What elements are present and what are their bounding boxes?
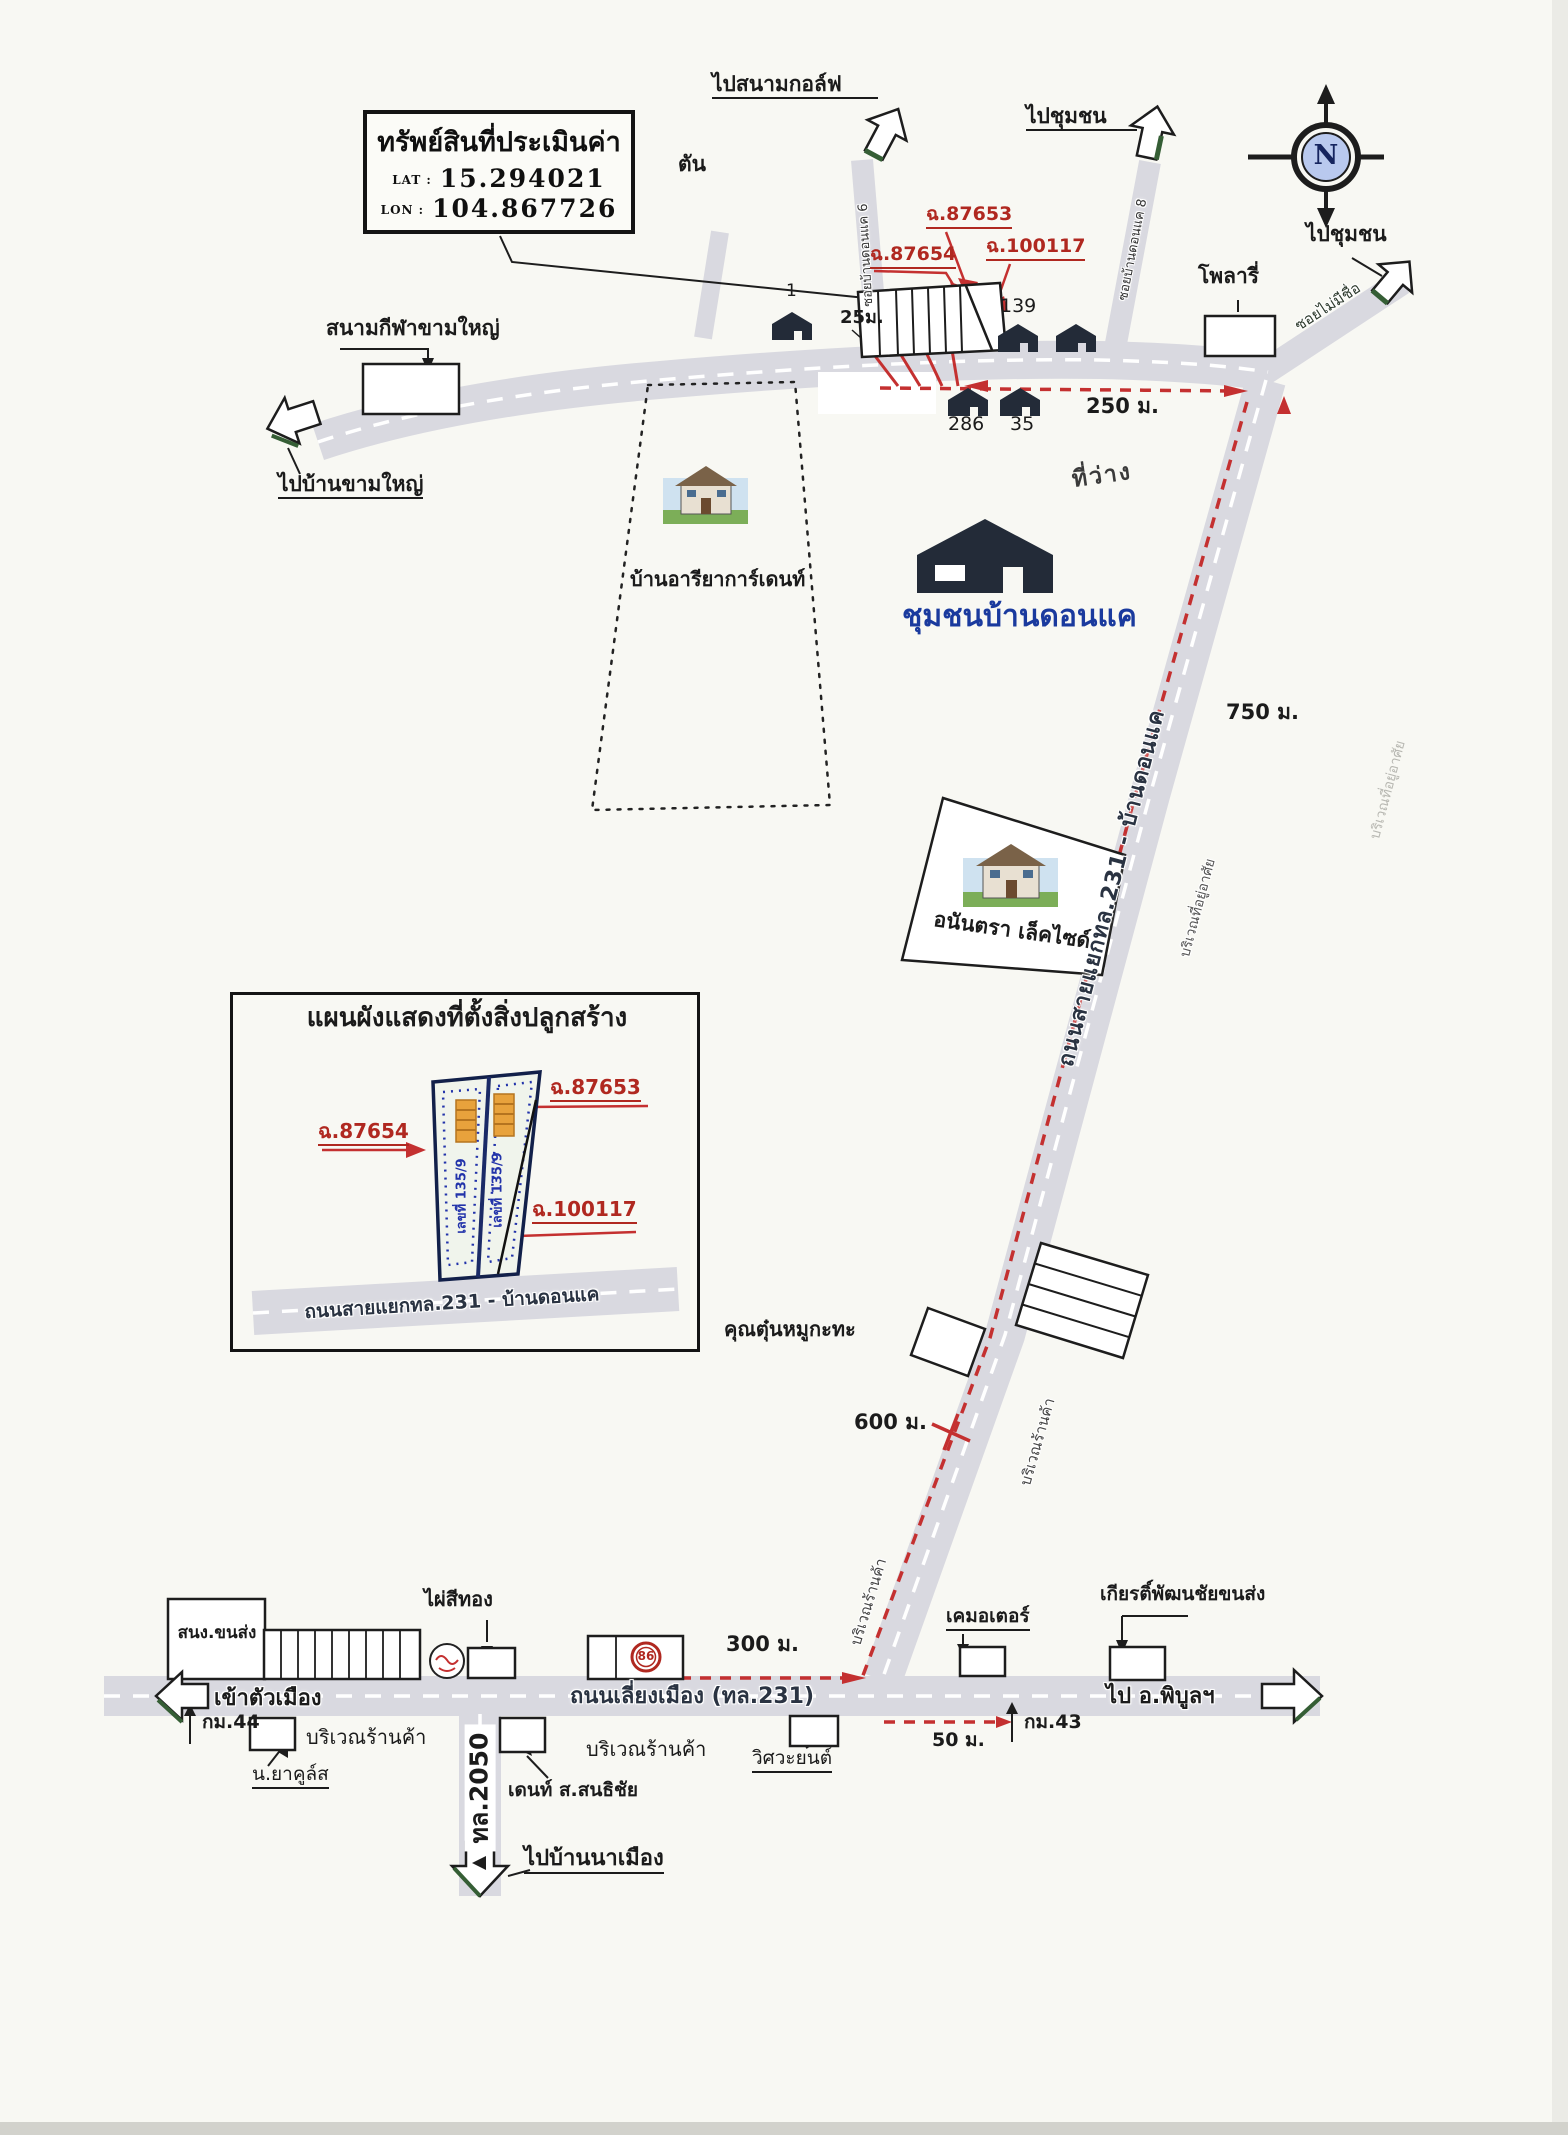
transport-office-label: สนง.ขนส่ง [172,1624,262,1644]
gas-86-label: 86 [638,1650,655,1664]
polaris-box [1205,316,1275,356]
inset-title: แผนผังแสดงที่ตั้งสิ่งปลูกสร้าง [252,1004,682,1034]
dead-end-stub-road [703,232,720,338]
deed-87654-label: ฉ.87654 [870,244,956,269]
inset-deed-87654: ฉ.87654 [318,1120,409,1146]
inset-deed-100117: ฉ.100117 [532,1198,637,1224]
kiat-transport-label: เกียรติ์พัฒนชัยขนส่ง [1100,1584,1265,1606]
deed-100117-label: ฉ.100117 [986,236,1085,261]
golf-arrow [854,99,917,166]
dist-50m-label: 50 ม. [932,1730,985,1752]
white-patch [818,372,936,414]
to-community-left-label: ไปชุมชน [1026,104,1137,131]
dent-label: เดนท์ ส.สนธิชัย [508,1780,638,1802]
mookata-label: คุณตุ๋นหมูกะทะ [724,1318,856,1341]
phai-si-thong-label: ไผ่สีทอง [424,1588,493,1611]
dent-box [500,1718,545,1752]
lat-value: 15.294021 [440,164,606,193]
ariya-dashed-parcel [592,382,830,810]
stadium-label: สนามกีฬาขามใหญ่ [326,316,500,340]
house-139-label: 139 [1000,296,1036,318]
yakult-label: น.ยาคูล์ส [252,1764,329,1789]
to-city-label: เข้าตัวเมือง [214,1686,322,1711]
km43-label: กม.43 [1024,1712,1082,1734]
title-box: ทรัพย์สินที่ประเมินค่า LAT :15.294021 LO… [363,110,635,234]
to-golf-label: ไปสนามกอล์ฟ [712,72,878,99]
polaris-label: โพลารี่ [1198,264,1259,288]
shophouse-row [264,1630,420,1679]
width-25m-label: 25ม. [840,308,884,329]
logo-circle [430,1644,464,1678]
title-box-title: ทรัพย์สินที่ประเมินค่า [367,120,631,163]
lat-label: LAT : [392,173,432,187]
scan-edge-right [1552,0,1568,2135]
kham-yai-arrow [260,390,325,454]
inset-house-no-right: เลขที่ 135/9 [492,1152,507,1227]
bottom-road-label: ถนนเลี่ยงเมือง (ทล.231) [570,1684,814,1709]
house-35-label: 35 [1010,414,1034,436]
to-community-right-label: ไปชุมชน [1306,222,1387,246]
k-motor-label: เคมอเตอร์ [946,1606,1030,1631]
dist-750m-label: 750 ม. [1226,700,1299,724]
dist-300m-label: 300 ม. [726,1632,799,1656]
wisawayon-label: วิศวะยนต์ [752,1748,832,1773]
lon-value: 104.867726 [432,194,617,223]
km44-label: กม.44 [202,1712,260,1734]
to-phibun-label: ไป อ.พิบูลฯ [1106,1684,1215,1709]
map-page: ทรัพย์สินที่ประเมินค่า LAT :15.294021 LO… [0,0,1568,2135]
community-label: ชุมชนบ้านดอนแค [902,600,1137,635]
house-286-label: 286 [948,414,984,436]
inset-deed-87653: ฉ.87653 [550,1076,641,1102]
compass-n: N [1314,140,1339,171]
kham-yai-label: ไปบ้านขามใหญ่ [278,472,423,499]
community-big-house [917,519,1053,593]
ariya-label: บ้านอารียาการ์เดนท์ [630,568,805,591]
ariya-house-image [663,466,748,524]
bottom-shops-a-label: บริเวณร้านค้า [306,1726,426,1749]
dead-end-label: ตัน [678,152,706,176]
lon-label: LON : [381,203,424,217]
tl2050-label: ทล.2050 [465,1725,496,1852]
dist-600m-label: 600 ม. [854,1410,927,1434]
kiat-transport-box [1110,1647,1165,1680]
inset-house-no-left: เลขที่ 135/9 [456,1158,471,1233]
house-1-label: 1 [786,282,797,302]
deed-87653-label: ฉ.87653 [926,204,1012,229]
to-ban-na-mueang-label: ไปบ้านนาเมือง [524,1846,664,1874]
scan-edge-bottom [0,2122,1568,2135]
phai-si-thong-box [468,1648,515,1678]
wisawayon-box [790,1716,838,1746]
bottom-shops-b-label: บริเวณร้านค้า [586,1738,706,1761]
k-motor-box [960,1647,1005,1676]
stadium-box [363,364,459,414]
dist-250m-label: 250 ม. [1086,394,1159,418]
